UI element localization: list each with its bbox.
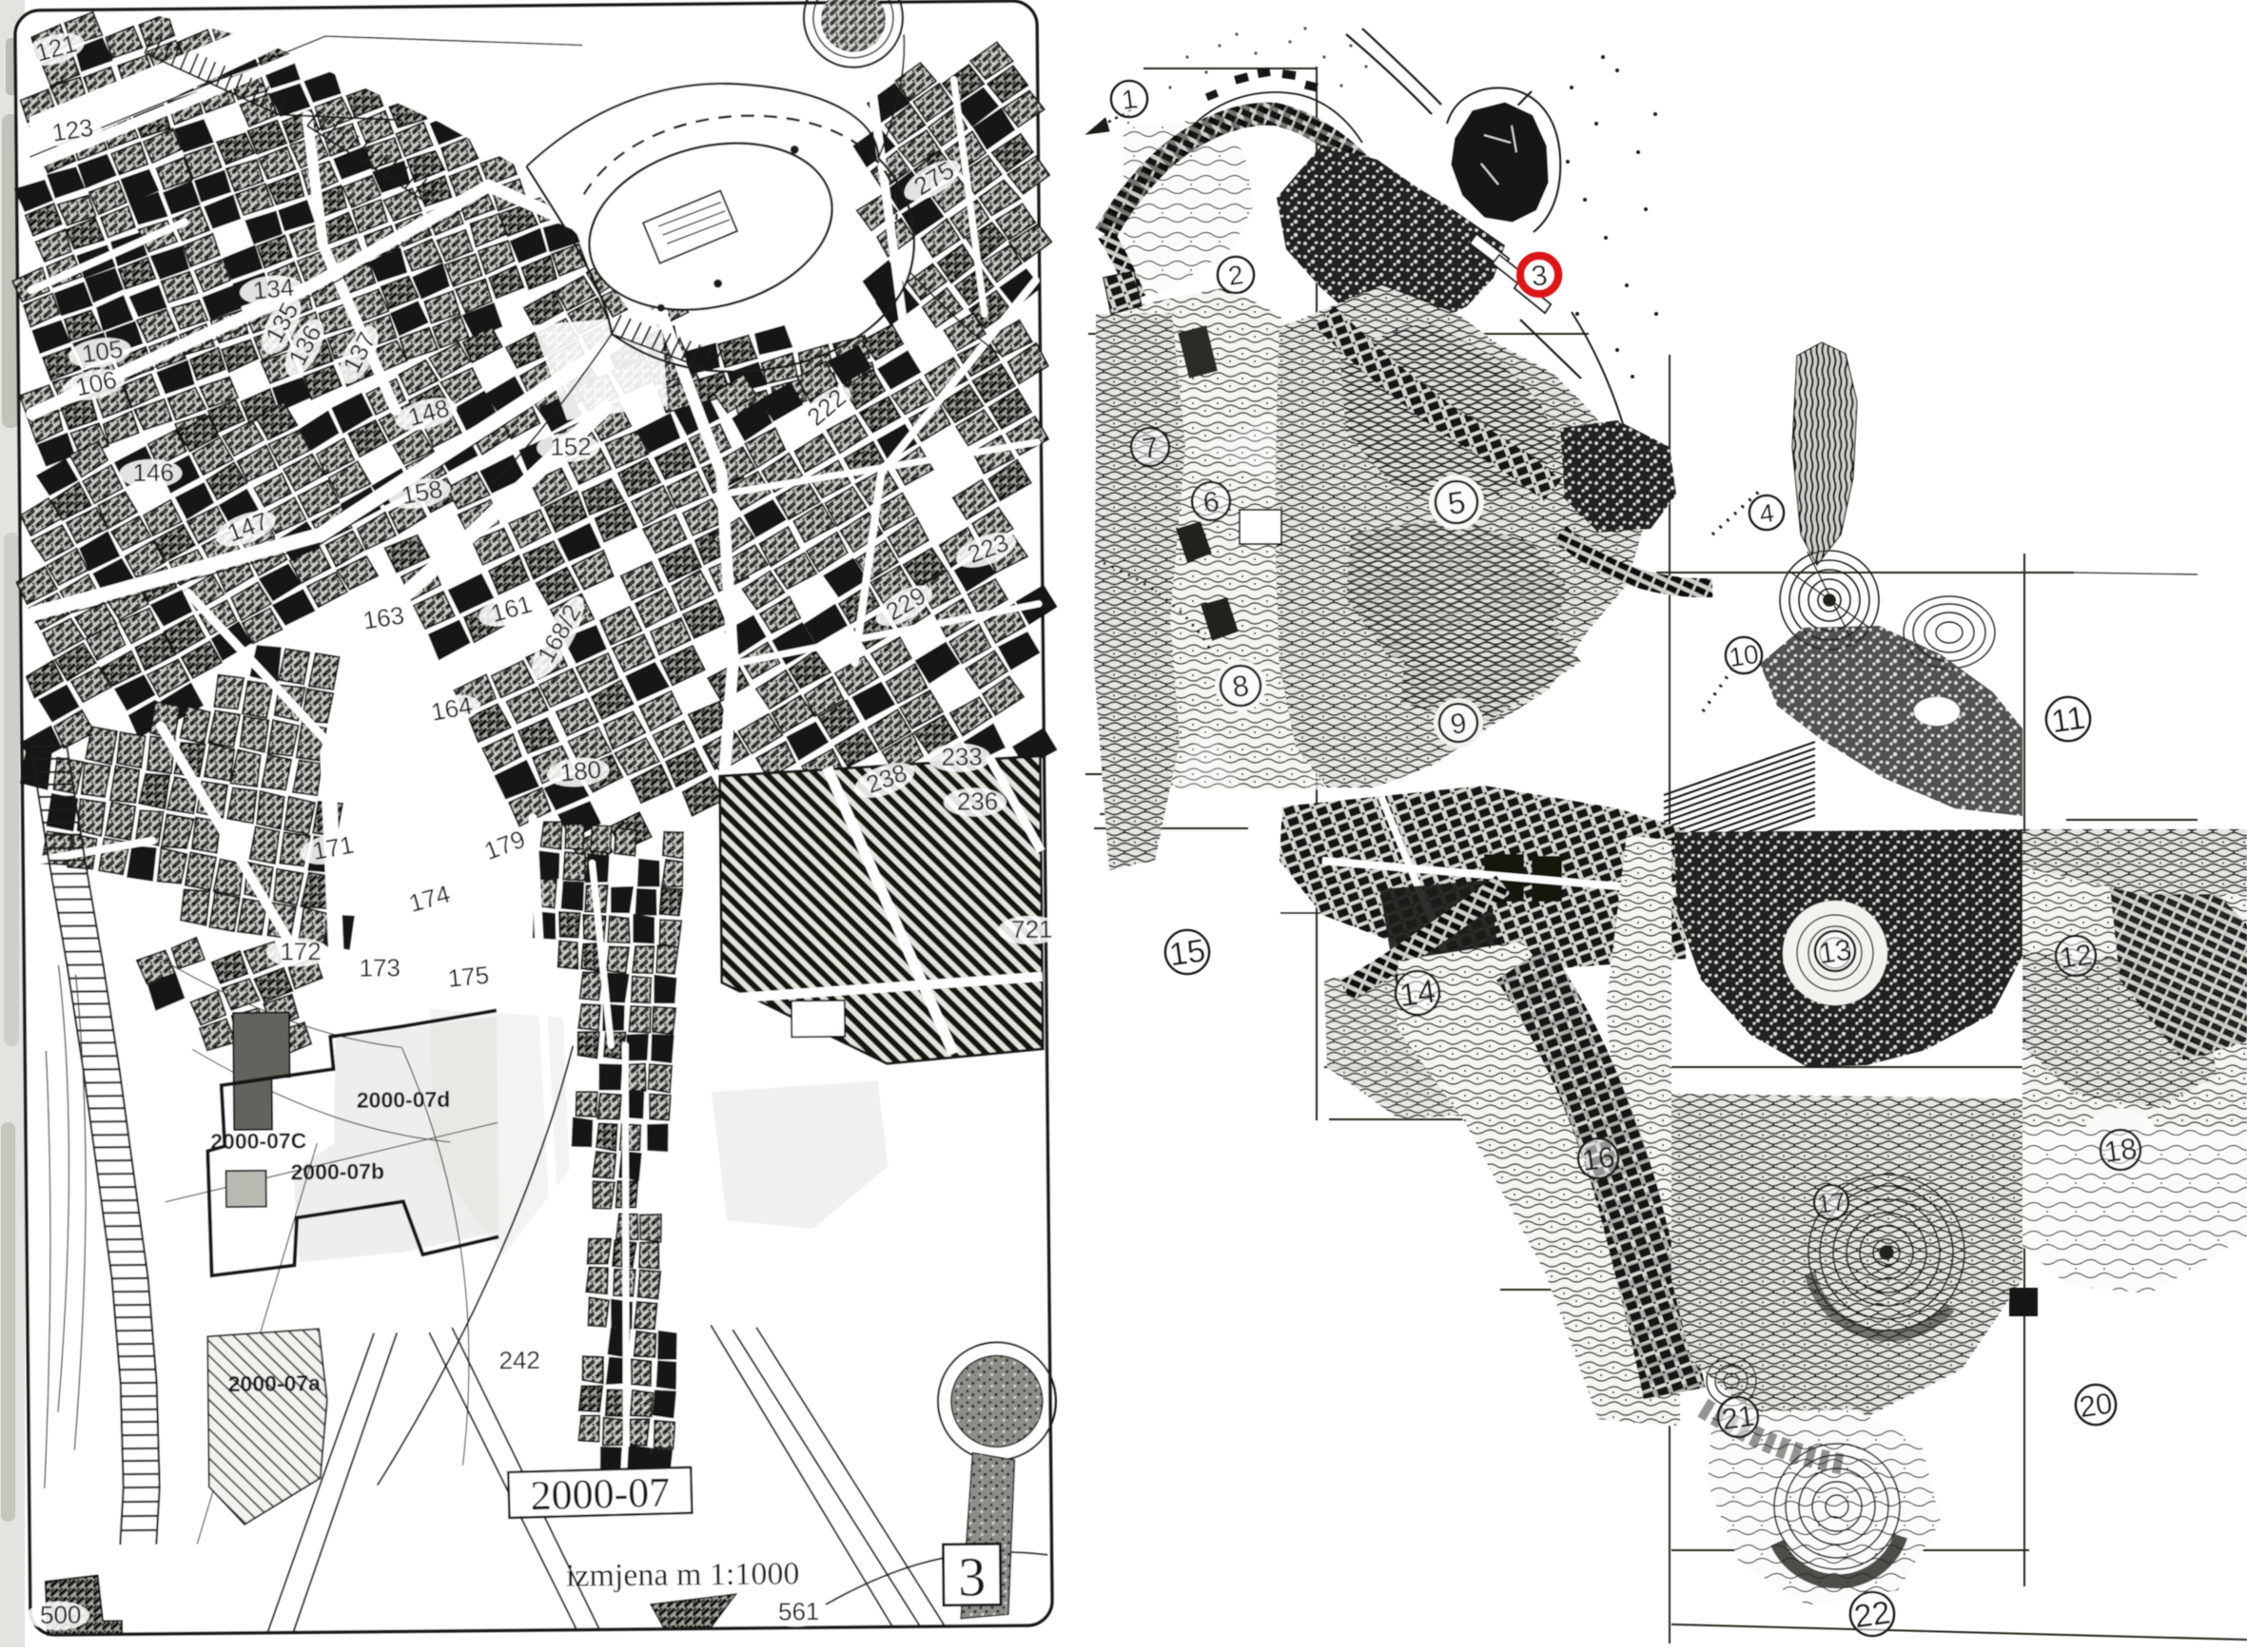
svg-text:14: 14 [1397, 974, 1438, 1015]
svg-text:22: 22 [1852, 1595, 1893, 1636]
svg-text:105: 105 [80, 334, 125, 368]
svg-text:175: 175 [446, 961, 490, 993]
svg-text:13: 13 [1817, 933, 1854, 970]
svg-text:242: 242 [498, 1346, 540, 1374]
svg-text:18: 18 [2102, 1132, 2140, 1169]
svg-text:3: 3 [1530, 260, 1549, 293]
svg-text:2000-07b: 2000-07b [290, 1159, 384, 1185]
svg-text:123: 123 [50, 113, 95, 147]
svg-text:500: 500 [40, 1601, 82, 1629]
svg-text:163: 163 [361, 601, 406, 635]
svg-text:152: 152 [550, 432, 592, 460]
svg-text:17: 17 [1815, 1187, 1847, 1219]
svg-text:15: 15 [1167, 933, 1208, 974]
svg-text:20: 20 [2078, 1387, 2115, 1424]
svg-text:3: 3 [958, 1545, 987, 1607]
svg-text:16: 16 [1580, 1140, 1617, 1177]
svg-text:21: 21 [1720, 1399, 1757, 1436]
svg-text:2000-07: 2000-07 [530, 1468, 671, 1519]
svg-text:2000-07a: 2000-07a [228, 1370, 322, 1396]
svg-text:180: 180 [558, 755, 602, 787]
svg-text:2000-07C: 2000-07C [210, 1128, 306, 1154]
svg-text:146: 146 [132, 458, 174, 487]
svg-text:561: 561 [778, 1597, 820, 1625]
svg-text:12: 12 [2058, 938, 2095, 975]
svg-text:236: 236 [957, 787, 999, 815]
svg-text:izmjena m 1:1000: izmjena m 1:1000 [566, 1556, 800, 1593]
svg-text:173: 173 [359, 953, 401, 981]
svg-text:11: 11 [2049, 700, 2087, 741]
svg-text:233: 233 [941, 742, 983, 770]
svg-text:172: 172 [280, 937, 322, 965]
svg-text:721: 721 [1011, 915, 1053, 943]
svg-text:10: 10 [1727, 639, 1760, 672]
svg-text:2000-07d: 2000-07d [357, 1087, 451, 1113]
